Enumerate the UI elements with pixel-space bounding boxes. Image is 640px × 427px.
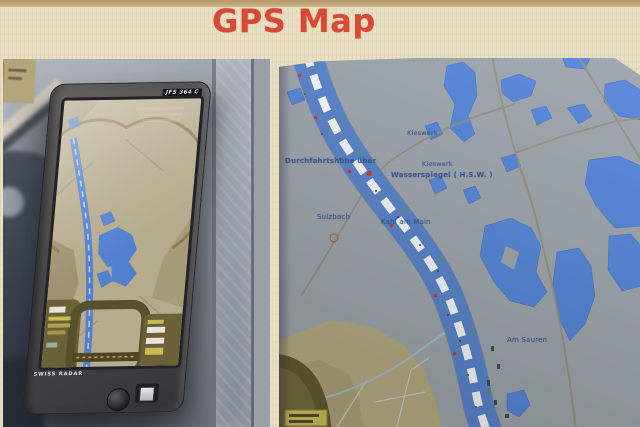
power-knob	[106, 388, 131, 411]
panel-text-smudge	[8, 68, 26, 72]
map-label-clearance-left: Durchfahrtshöhe über	[285, 157, 376, 165]
device-screen-map	[41, 98, 201, 367]
blurred-panel-object	[3, 59, 36, 104]
device-photo: JFS 364 C	[3, 59, 270, 427]
slide-background: GPS Map JFS 364 C	[0, 0, 640, 427]
overlay-info-text-smudge	[289, 414, 319, 417]
device-screen	[38, 95, 205, 370]
overlay-info-text-smudge	[289, 420, 313, 423]
toggle-switch	[139, 387, 155, 402]
map-label-kieswerk-lower: Kieswerk	[422, 160, 453, 168]
map-graphic	[279, 58, 640, 427]
wall-right-strip	[254, 59, 270, 427]
map-label-kieswerk-upper: Kieswerk	[407, 129, 438, 137]
gps-map-photo: Durchfahrtshöhe über Wasserspiegel ( H.S…	[279, 58, 640, 427]
panel-text-smudge	[8, 76, 22, 80]
map-label-kahl: Kahl am Main	[381, 218, 431, 226]
slide-title: GPS Map	[212, 2, 432, 40]
overlay-info-box	[285, 410, 327, 426]
map-label-clearance-right: Wasserspiegel ( H.S.W. )	[391, 171, 493, 179]
wall-pillar	[216, 59, 251, 427]
screen-overlay-bottom-bar	[72, 352, 139, 362]
map-label-sulzbach: Sulzbach	[317, 213, 350, 221]
map-label-am-sauren: Am Sauren	[507, 336, 547, 344]
radar-device: JFS 364 C	[22, 81, 212, 415]
device-brand-label: SWISS RADAR	[33, 371, 83, 378]
